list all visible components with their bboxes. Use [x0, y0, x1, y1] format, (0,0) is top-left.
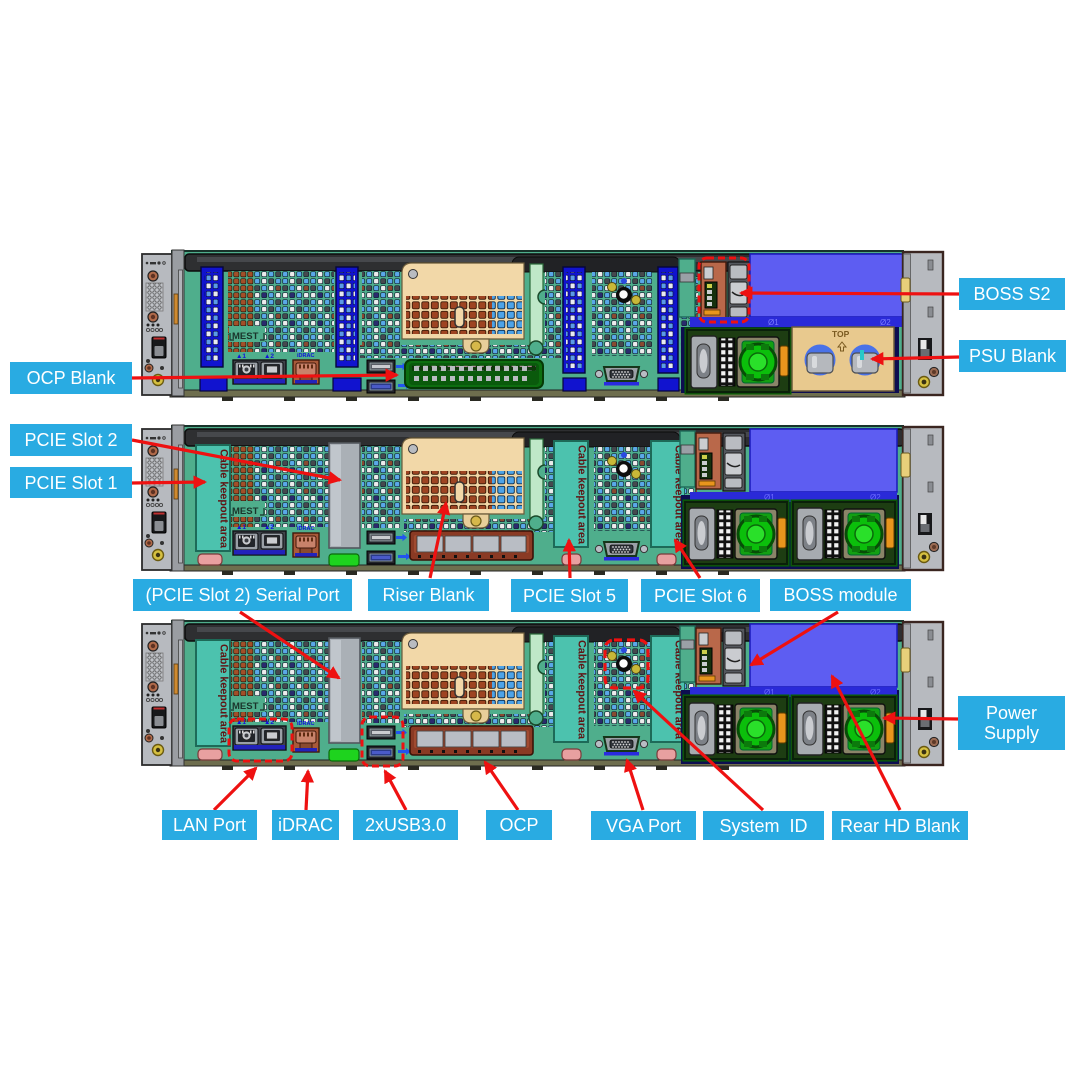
svg-text:Ø1: Ø1 [768, 318, 779, 327]
svg-text:TOP: TOP [832, 329, 850, 339]
svg-text:MEST: MEST [232, 331, 259, 342]
svg-text:Ø2: Ø2 [880, 318, 891, 327]
